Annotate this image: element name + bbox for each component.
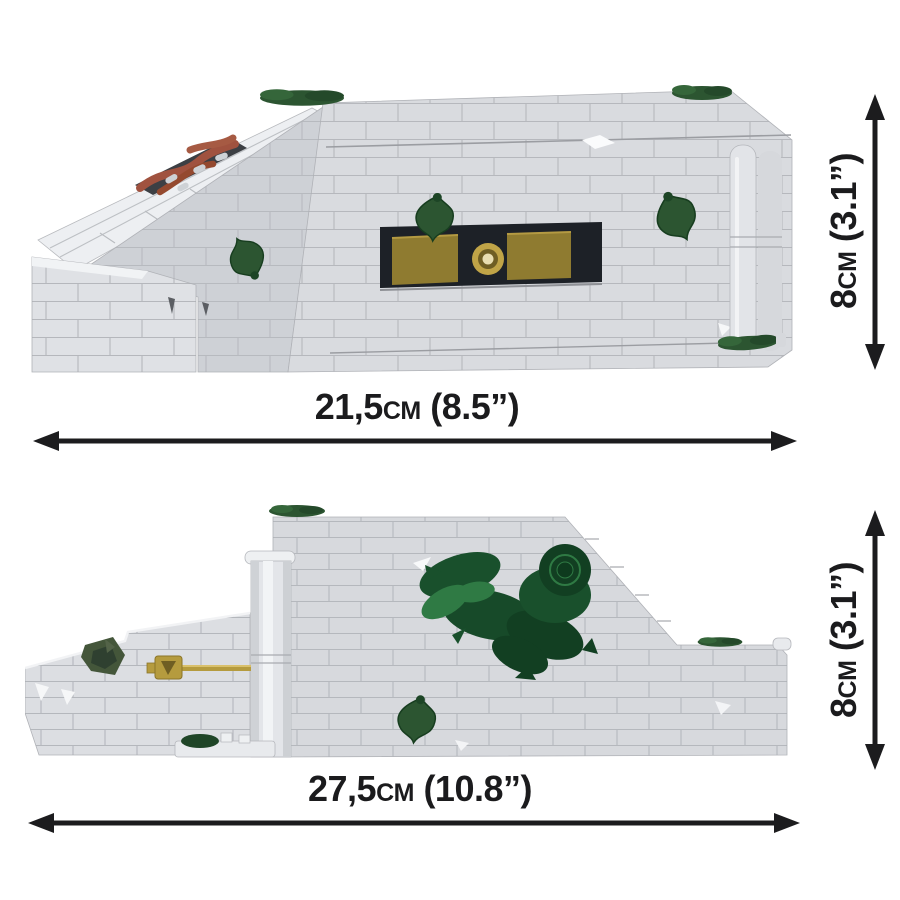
step-foliage-icon (698, 637, 743, 647)
side-width-label: 27,5cm (10.8”) (308, 768, 532, 810)
bunker-side-photo (25, 505, 800, 775)
side-width-arrow (28, 809, 800, 837)
top-foliage-icon (672, 85, 732, 100)
corner-columns (730, 145, 782, 351)
side-height-arrow (861, 510, 889, 770)
bunker-front-photo (30, 85, 810, 385)
side-height-label: 8cm (3.1”) (823, 562, 865, 718)
embrasure-opening (380, 222, 602, 290)
product-dimensions-image: 21,5cm (8.5”) 8cm (3.1”) (0, 0, 900, 900)
front-height-label: 8cm (3.1”) (823, 153, 865, 309)
stud-brick (776, 333, 786, 347)
base-foliage-icon (181, 734, 219, 748)
front-width-label: 21,5cm (8.5”) (315, 386, 519, 428)
side-left-wall (25, 613, 250, 755)
top-foliage-icon (269, 505, 325, 517)
side-column (245, 551, 295, 757)
top-foliage-icon (260, 89, 344, 106)
front-height-arrow (861, 94, 889, 370)
front-width-arrow (33, 427, 797, 455)
gun-mount (472, 243, 504, 275)
